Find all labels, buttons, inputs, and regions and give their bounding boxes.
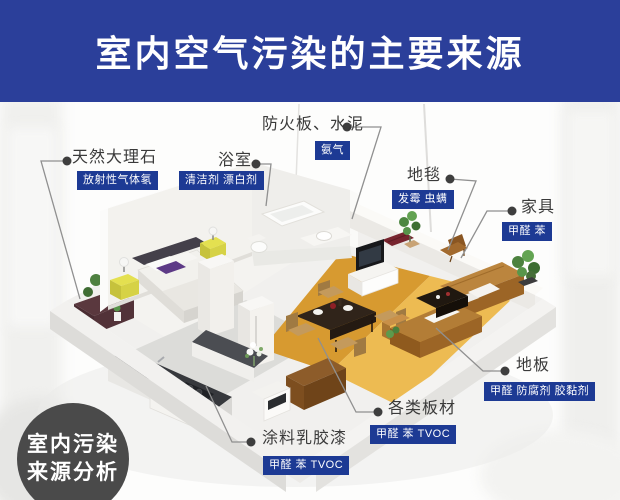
bathroom-anchor-dot	[252, 160, 261, 169]
label-fireboard-pollutants: 氨气	[315, 141, 350, 160]
floor-anchor-dot	[501, 367, 510, 376]
marble-anchor-dot	[63, 157, 72, 166]
analysis-circle-line2: 来源分析	[27, 459, 119, 487]
label-carpet: 地毯	[407, 168, 441, 184]
label-fireboard: 防火板、水泥	[262, 117, 364, 133]
label-marble: 天然大理石	[72, 150, 157, 166]
bathroom-block	[247, 162, 358, 266]
infographic-canvas: 室内空气污染的主要来源 天然大理石 放射性气体氡 浴室 清洁剂 漂白剂 防火板、…	[0, 0, 620, 500]
label-marble-pollutants: 放射性气体氡	[77, 171, 158, 190]
label-carpet-pollutants: 发霉 虫螨	[392, 190, 454, 209]
label-furniture-pollutants: 甲醛 苯	[502, 222, 552, 241]
page-title: 室内空气污染的主要来源	[95, 25, 524, 77]
paint-anchor-dot	[247, 438, 256, 447]
label-floor-pollutants: 甲醛 防腐剂 胶黏剂	[484, 382, 595, 401]
furniture-anchor-dot	[508, 207, 517, 216]
label-bathroom-pollutants: 清洁剂 漂白剂	[179, 171, 264, 190]
label-paint-pollutants: 甲醛 苯 TVOC	[263, 456, 349, 475]
label-bathroom: 浴室	[218, 153, 252, 169]
analysis-circle-line1: 室内污染	[27, 431, 119, 459]
label-boards-pollutants: 甲醛 苯 TVOC	[370, 425, 456, 444]
label-floor: 地板	[516, 358, 550, 374]
label-paint: 涂料乳胶漆	[262, 431, 347, 447]
marble-leader	[41, 161, 80, 299]
label-furniture: 家具	[521, 200, 555, 216]
label-boards: 各类板材	[388, 401, 456, 417]
carpet-anchor-dot	[446, 175, 455, 184]
title-banner: 室内空气污染的主要来源	[0, 0, 620, 102]
boards-anchor-dot	[374, 408, 383, 417]
